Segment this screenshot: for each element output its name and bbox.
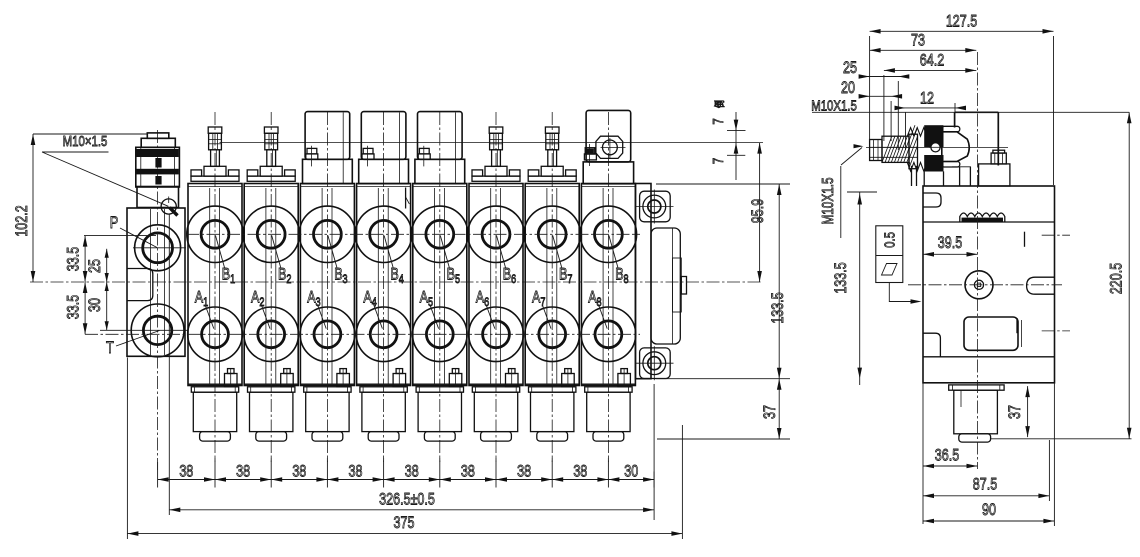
svg-text:90: 90: [982, 502, 996, 520]
svg-text:P: P: [110, 213, 119, 232]
svg-text:20: 20: [841, 79, 855, 97]
svg-text:38: 38: [349, 463, 363, 481]
svg-text:25: 25: [86, 259, 104, 273]
svg-text:30: 30: [86, 298, 104, 312]
svg-text:36.5: 36.5: [935, 447, 959, 465]
svg-text:87.5: 87.5: [973, 476, 997, 494]
svg-text:326.5±0.5: 326.5±0.5: [379, 491, 435, 509]
svg-text:102.2: 102.2: [13, 205, 31, 236]
svg-text:0.5: 0.5: [881, 232, 898, 248]
svg-text:7: 7: [709, 118, 726, 124]
svg-text:T: T: [106, 338, 114, 357]
svg-text:64.2: 64.2: [920, 52, 944, 70]
svg-text:M10X1.5: M10X1.5: [819, 177, 836, 224]
svg-text:33.5: 33.5: [65, 247, 83, 271]
svg-text:38: 38: [573, 463, 587, 481]
svg-text:M10X1.5: M10X1.5: [811, 97, 857, 114]
svg-text:38: 38: [179, 463, 193, 481]
svg-text:127.5: 127.5: [946, 13, 977, 31]
svg-text:73: 73: [911, 32, 925, 50]
svg-text:7: 7: [709, 158, 726, 164]
svg-text:133.5: 133.5: [769, 292, 787, 323]
svg-text:38: 38: [292, 463, 306, 481]
svg-text:30: 30: [624, 463, 638, 481]
svg-text:220.5: 220.5: [1108, 263, 1126, 294]
svg-text:375: 375: [394, 515, 415, 533]
svg-text:37: 37: [1006, 405, 1024, 419]
svg-text:39.5: 39.5: [938, 234, 962, 252]
svg-text:M10×1.5: M10×1.5: [63, 132, 108, 149]
svg-text:95.9: 95.9: [749, 199, 767, 223]
svg-text:38: 38: [405, 463, 419, 481]
svg-text:38: 38: [461, 463, 475, 481]
svg-text:38: 38: [517, 463, 531, 481]
svg-text:38: 38: [236, 463, 250, 481]
svg-text:倒: 倒: [713, 100, 725, 108]
svg-text:37: 37: [761, 405, 779, 419]
svg-text:33.5: 33.5: [65, 295, 83, 319]
svg-text:25: 25: [843, 60, 857, 78]
svg-text:133.5: 133.5: [832, 262, 850, 293]
svg-text:12: 12: [920, 90, 934, 108]
